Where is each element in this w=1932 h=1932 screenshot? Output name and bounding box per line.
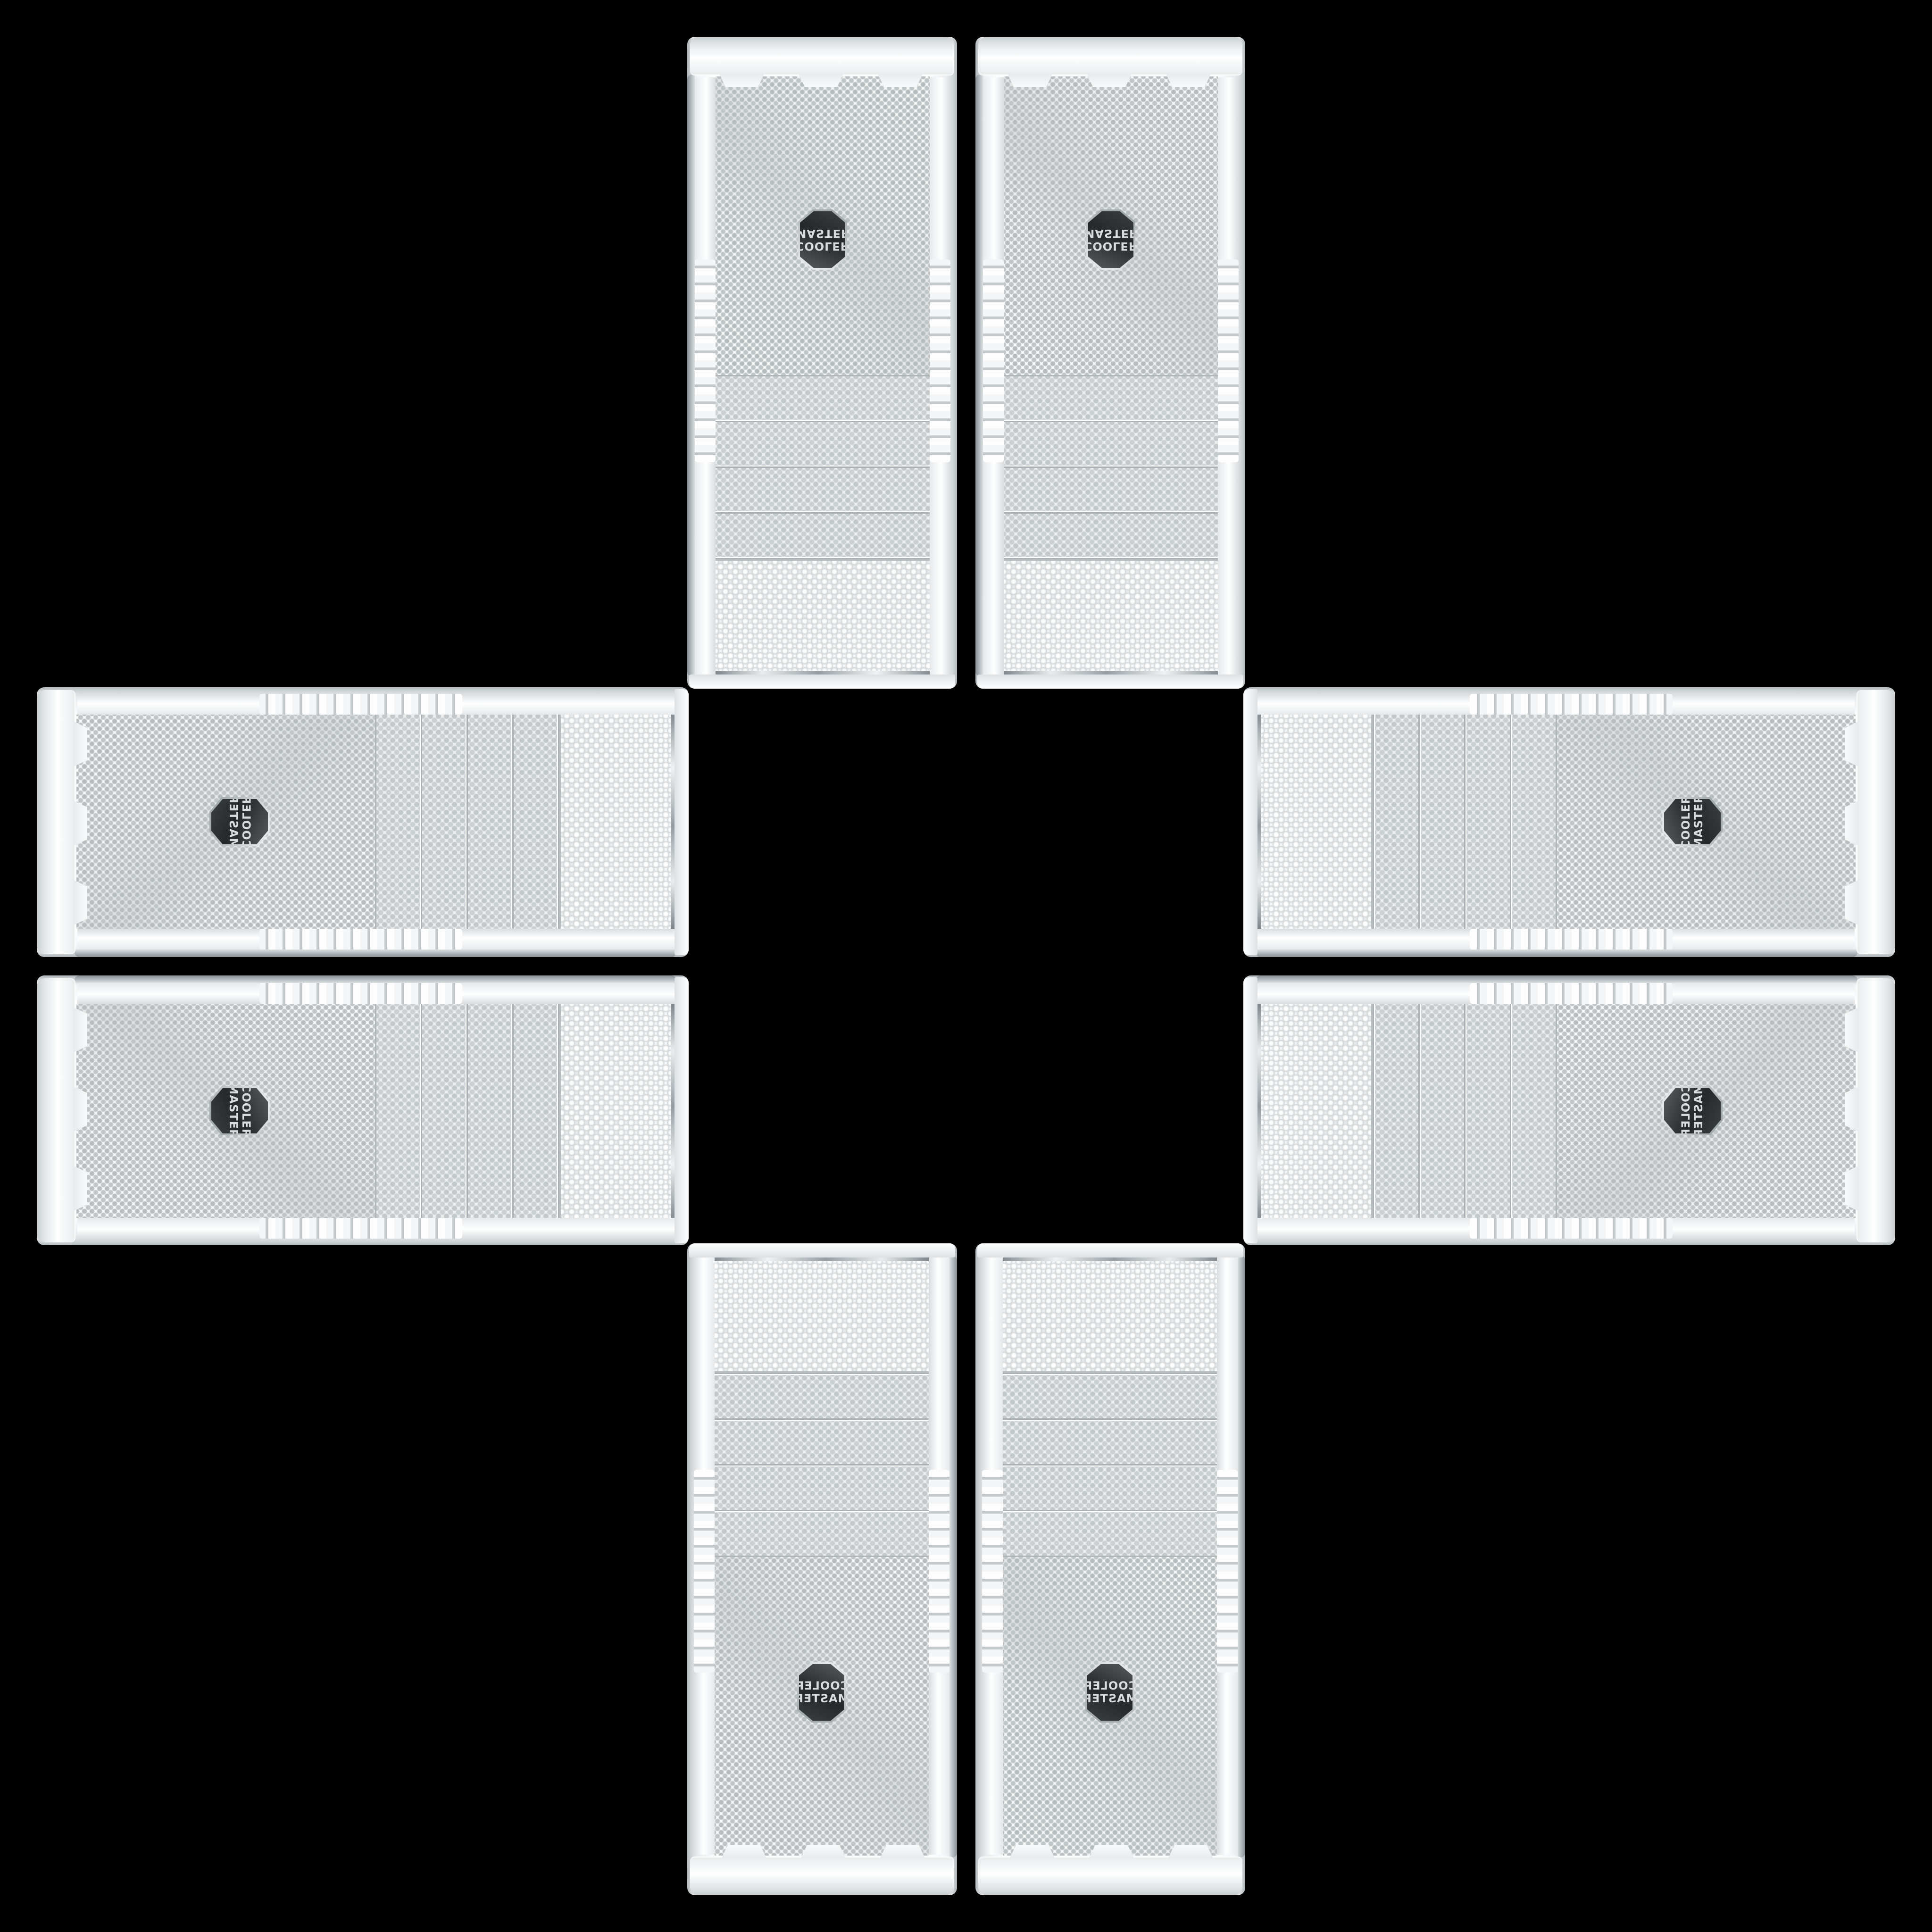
chrome-trim <box>1257 715 1261 929</box>
cap-notch <box>74 1166 87 1211</box>
cap-notch <box>1845 1166 1858 1211</box>
grip-ribs-left <box>983 259 1004 462</box>
front-mesh-grille: COOLER MASTER <box>715 1556 929 1856</box>
drive-bay-cover <box>1004 514 1218 559</box>
badge-text-line2: MASTER <box>795 227 850 239</box>
front-mesh-grille: COOLER MASTER <box>1004 76 1218 376</box>
cooler-master-badge-face: COOLER MASTER <box>1664 799 1721 844</box>
cooler-master-badge: COOLER MASTER <box>1085 1662 1134 1723</box>
cooler-master-badge: COOLER MASTER <box>1086 209 1135 270</box>
grip-ribs-right <box>694 1470 715 1673</box>
cooler-master-badge-face: COOLER MASTER <box>1088 211 1133 268</box>
drive-bay-cover <box>715 1418 929 1464</box>
case-right-top: COOLER MASTER <box>1243 687 1895 957</box>
case-outer-end-cap <box>37 978 75 1242</box>
badge-text-line1: COOLER <box>1084 240 1138 252</box>
case-outer-end-cap <box>1857 690 1895 954</box>
case-rail-left <box>929 1257 949 1855</box>
case-side-panel-edge <box>949 1256 957 1857</box>
drive-bay-cover <box>1003 1373 1217 1418</box>
case-outer-end-cap <box>37 690 75 954</box>
case-side-panel-edge <box>687 75 695 676</box>
grip-ribs-right <box>259 694 462 715</box>
case-rail-left <box>983 77 1004 675</box>
drive-bay-cover <box>1373 1004 1418 1218</box>
case-inner-end-cap <box>675 689 689 955</box>
grip-ribs-right <box>930 259 950 462</box>
cap-notch <box>799 74 844 87</box>
case-rail-right <box>77 694 675 715</box>
drive-bay-cover <box>1418 715 1464 929</box>
cooler-master-badge: COOLER MASTER <box>209 1086 270 1135</box>
cooler-master-badge: COOLER MASTER <box>1662 797 1723 846</box>
case-front-panel: COOLER MASTER <box>1257 715 1856 929</box>
case-inner-end-cap <box>689 1243 955 1257</box>
cap-notch <box>1087 74 1132 87</box>
drive-bay-cover <box>1004 376 1218 422</box>
grip-ribs-left <box>1217 1470 1238 1673</box>
drive-bay-cover <box>1004 468 1218 514</box>
case-rail-right <box>982 1257 1003 1855</box>
vent-bump-mesh-band <box>1261 715 1373 929</box>
drive-bay-cover <box>1373 715 1418 929</box>
drive-bay-cover <box>1418 1004 1464 1218</box>
cap-notch <box>1009 1845 1055 1858</box>
case-rail-left <box>1217 1257 1238 1855</box>
case-left-top: COOLER MASTER <box>37 687 689 957</box>
cooler-master-badge: COOLER MASTER <box>797 1662 846 1723</box>
cooler-master-badge-face: COOLER MASTER <box>211 799 268 844</box>
cap-notch <box>1845 1087 1858 1132</box>
grip-ribs-right <box>982 1470 1003 1673</box>
case-outer-end-cap <box>978 1857 1242 1895</box>
drive-bay-cover <box>1003 1418 1217 1464</box>
case-side-panel-edge <box>975 75 983 676</box>
case-top-left: COOLER MASTER <box>687 37 957 689</box>
badge-text-line2: MASTER <box>1693 794 1705 849</box>
drive-bay-cover <box>715 1464 929 1510</box>
case-inner-end-cap <box>1243 689 1257 955</box>
grip-ribs-left <box>929 1470 949 1673</box>
cap-notch <box>74 721 87 766</box>
cooler-master-badge: COOLER MASTER <box>1662 1086 1723 1135</box>
cap-notch <box>1845 721 1858 766</box>
case-rail-right <box>1257 694 1855 715</box>
cooler-master-badge-face: COOLER MASTER <box>1087 1664 1133 1721</box>
drive-bay-cover <box>376 1004 422 1218</box>
case-front-panel: COOLER MASTER <box>1003 1257 1217 1856</box>
case-side-panel-edge <box>1256 975 1857 983</box>
cap-notch <box>1089 1845 1134 1858</box>
drive-bay-cover <box>422 715 468 929</box>
case-rail-right <box>77 1218 675 1239</box>
badge-text-line1: COOLER <box>796 240 850 252</box>
cap-notch <box>74 800 87 846</box>
drive-bay-cover <box>715 1373 929 1418</box>
vent-bump-mesh-band <box>559 1004 671 1218</box>
drive-bay-cover <box>715 1510 929 1556</box>
badge-text-line2: MASTER <box>1083 1693 1138 1705</box>
case-side-panel-edge <box>1256 949 1857 957</box>
drive-bay-cover <box>1510 715 1556 929</box>
chrome-trim <box>671 715 675 929</box>
drive-bay-cover <box>514 1004 559 1218</box>
drive-bay-cover <box>468 1004 514 1218</box>
vent-bump-mesh-band <box>716 559 930 671</box>
grip-ribs-right <box>1218 259 1239 462</box>
product-collage-scene: COOLER MASTER <box>0 0 1932 1932</box>
chrome-trim <box>1004 671 1218 675</box>
case-rail-right <box>930 77 950 675</box>
cap-notch <box>719 74 765 87</box>
vent-bump-mesh-band <box>1004 559 1218 671</box>
grip-ribs-left <box>259 983 462 1004</box>
case-front-panel: COOLER MASTER <box>715 1257 929 1856</box>
badge-text-line1: COOLER <box>240 795 252 849</box>
cap-notch <box>800 1845 846 1858</box>
badge-text-line2: MASTER <box>227 1083 239 1139</box>
chrome-trim <box>1003 1257 1217 1261</box>
grip-ribs-right <box>1470 1218 1673 1239</box>
case-side-panel-edge <box>1238 1256 1245 1857</box>
case-front-panel: COOLER MASTER <box>1004 76 1218 675</box>
drive-bay-cover <box>716 514 930 559</box>
badge-text-line2: MASTER <box>1693 1083 1705 1139</box>
drive-bay-cover <box>514 715 559 929</box>
case-rail-left <box>695 77 716 675</box>
front-mesh-grille: COOLER MASTER <box>716 76 930 376</box>
cap-notch <box>878 74 923 87</box>
cooler-master-badge: COOLER MASTER <box>209 797 270 846</box>
chrome-trim <box>671 1004 675 1218</box>
vent-bump-mesh-band <box>715 1261 929 1373</box>
drive-bay-cover <box>716 422 930 468</box>
case-bottom-left: COOLER MASTER <box>687 1243 957 1895</box>
badge-text-line1: COOLER <box>1680 1084 1692 1138</box>
case-inner-end-cap <box>689 675 955 689</box>
front-mesh-grille: COOLER MASTER <box>1556 1004 1856 1218</box>
case-right-bottom: COOLER MASTER <box>1243 975 1895 1245</box>
cap-notch <box>1845 880 1858 925</box>
cap-notch <box>1008 74 1053 87</box>
case-outer-end-cap <box>690 1857 954 1895</box>
chrome-trim <box>716 671 930 675</box>
cap-notch <box>1168 1845 1213 1858</box>
cap-notch <box>1166 74 1211 87</box>
grip-ribs-left <box>695 259 716 462</box>
case-top-right: COOLER MASTER <box>975 37 1245 689</box>
cooler-master-badge-face: COOLER MASTER <box>799 1664 844 1721</box>
case-front-panel: COOLER MASTER <box>76 1004 675 1218</box>
drive-bay-cover <box>716 376 930 422</box>
case-side-panel-edge <box>75 975 676 983</box>
cap-notch <box>721 1845 766 1858</box>
drive-bay-cover <box>1003 1464 1217 1510</box>
case-inner-end-cap <box>1243 977 1257 1243</box>
vent-bump-mesh-band <box>559 715 671 929</box>
cap-notch <box>74 880 87 925</box>
case-outer-end-cap <box>978 37 1242 75</box>
vent-bump-mesh-band <box>1003 1261 1217 1373</box>
drive-bay-cover <box>716 468 930 514</box>
front-mesh-grille: COOLER MASTER <box>76 1004 376 1218</box>
grip-ribs-left <box>259 929 462 949</box>
badge-text-line1: COOLER <box>240 1084 252 1138</box>
cooler-master-badge-face: COOLER MASTER <box>211 1088 268 1133</box>
front-mesh-grille: COOLER MASTER <box>1003 1556 1217 1856</box>
front-mesh-grille: COOLER MASTER <box>76 715 376 929</box>
drive-bay-cover <box>1510 1004 1556 1218</box>
cap-notch <box>1845 1008 1858 1053</box>
drive-bay-cover <box>376 715 422 929</box>
chrome-trim <box>715 1257 929 1261</box>
cooler-master-badge-face: COOLER MASTER <box>800 211 845 268</box>
case-front-panel: COOLER MASTER <box>716 76 930 675</box>
cap-notch <box>74 1087 87 1132</box>
drive-bay-cover <box>1004 422 1218 468</box>
badge-text-line1: COOLER <box>1680 795 1692 849</box>
grip-ribs-right <box>1470 694 1673 715</box>
badge-text-line2: MASTER <box>794 1693 849 1705</box>
drive-bay-cover <box>468 715 514 929</box>
vent-bump-mesh-band <box>1261 1004 1373 1218</box>
case-inner-end-cap <box>675 977 689 1243</box>
case-inner-end-cap <box>977 1243 1243 1257</box>
cooler-master-badge: COOLER MASTER <box>798 209 847 270</box>
drive-bay-cover <box>1464 1004 1510 1218</box>
drive-bay-cover <box>1464 715 1510 929</box>
case-left-bottom: COOLER MASTER <box>37 975 689 1245</box>
cooler-master-badge-face: COOLER MASTER <box>1664 1088 1721 1133</box>
badge-text-line1: COOLER <box>795 1680 849 1692</box>
case-outer-end-cap <box>1857 978 1895 1242</box>
case-bottom-right: COOLER MASTER <box>975 1243 1245 1895</box>
case-rail-left <box>77 929 675 949</box>
grip-ribs-left <box>1470 929 1673 949</box>
case-front-panel: COOLER MASTER <box>76 715 675 929</box>
case-side-panel-edge <box>75 949 676 957</box>
badge-text-line1: COOLER <box>1083 1680 1137 1692</box>
case-rail-right <box>1257 1218 1855 1239</box>
case-outer-end-cap <box>690 37 954 75</box>
cap-notch <box>1845 800 1858 846</box>
case-inner-end-cap <box>977 675 1243 689</box>
case-rail-right <box>1218 77 1239 675</box>
chrome-trim <box>1257 1004 1261 1218</box>
grip-ribs-left <box>1470 983 1673 1004</box>
badge-text-line2: MASTER <box>227 794 239 849</box>
front-mesh-grille: COOLER MASTER <box>1556 715 1856 929</box>
grip-ribs-right <box>259 1218 462 1239</box>
case-rail-right <box>694 1257 715 1855</box>
case-rail-left <box>1257 929 1855 949</box>
cap-notch <box>880 1845 925 1858</box>
case-front-panel: COOLER MASTER <box>1257 1004 1856 1218</box>
case-rail-left <box>1257 983 1855 1004</box>
case-rail-left <box>77 983 675 1004</box>
badge-text-line2: MASTER <box>1083 227 1139 239</box>
cap-notch <box>74 1008 87 1053</box>
drive-bay-cover <box>1003 1510 1217 1556</box>
drive-bay-cover <box>422 1004 468 1218</box>
